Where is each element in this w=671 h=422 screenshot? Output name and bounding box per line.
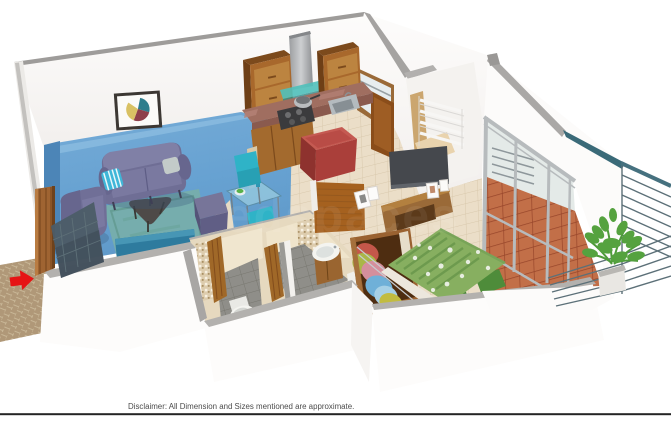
svg-text:edspaces: edspaces <box>225 190 460 243</box>
svg-text:Disclaimer: All Dimension and: Disclaimer: All Dimension and Sizes ment… <box>128 402 354 411</box>
